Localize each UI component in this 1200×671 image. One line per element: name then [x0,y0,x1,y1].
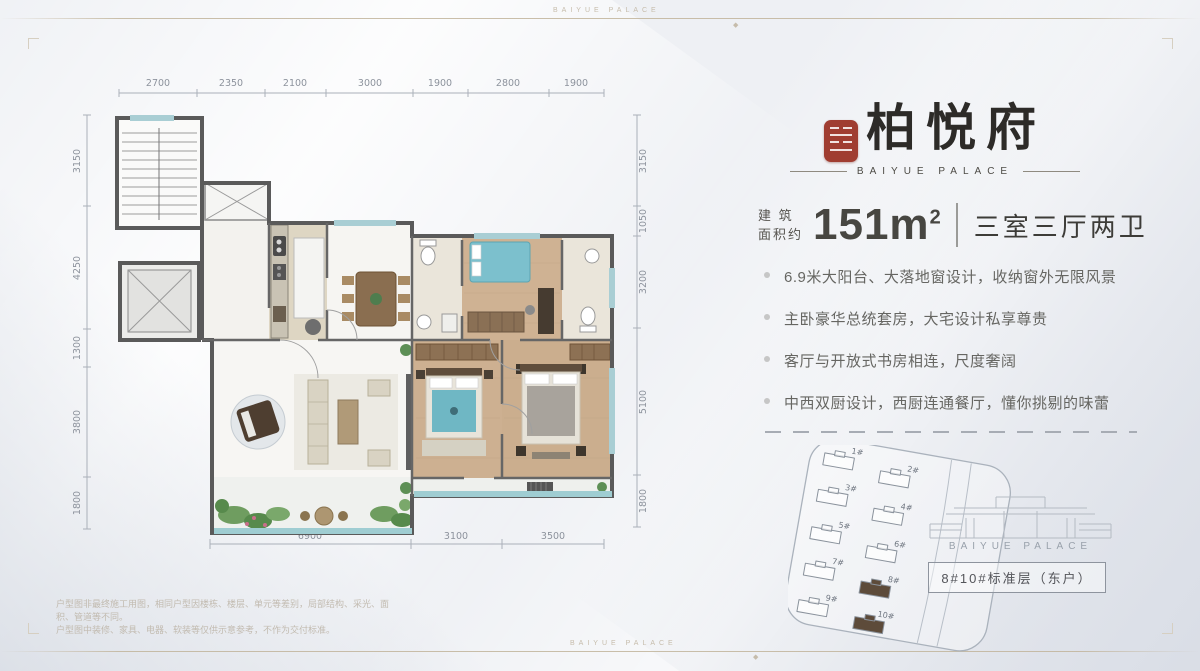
feature-item: 客厅与开放式书房相连，尺度奢阔 [762,350,1172,371]
feature-item: 中西双厨设计，西厨连通餐厅，懂你挑剔的味蕾 [762,392,1172,413]
dimension-label: 3500 [541,531,565,542]
dimension-label: 4250 [72,256,83,280]
dimension-right: 3150 1050 3200 5100 1800 [633,115,649,527]
poster: BAIYUE PALACE ◆ BAIYUE PALACE ◆ 2700 235… [0,0,1200,671]
bullet-dot [764,398,770,404]
floor-plan: 2700 2350 2100 3000 1900 2800 1900 3150 … [72,78,652,563]
elevation-caption: BAIYUE PALACE [918,541,1123,552]
dimension-label: 2700 [146,78,170,89]
feature-text: 中西双厨设计，西厨连通餐厅，懂你挑剔的味蕾 [784,392,1110,413]
dimension-label: 1800 [638,489,649,513]
bullet-dot [764,314,770,320]
corner-mark [28,38,39,49]
dimension-label: 3200 [638,270,649,294]
watermark-bottom: BAIYUE PALACE [570,640,677,647]
dimension-label: 3800 [72,410,83,434]
dimension-label: 2100 [283,78,307,89]
dashed-divider [765,431,1137,433]
area-label-line2: 面积约 [758,225,803,244]
disclaimer: 户型图非最终施工用图，相同户型因楼栋、楼层、单元等差别，局部结构、采光、面积、管… [56,598,396,637]
balcony [212,477,412,531]
diamond-ornament-bottom: ◆ [753,653,758,661]
subtitle-rule-left [790,171,847,172]
area-superscript: 2 [930,206,942,228]
dimension-label: 1800 [72,491,83,515]
area-label-line1: 建 筑 [758,206,803,225]
brand-seal-icon [824,120,858,162]
dimension-label: 1300 [72,336,83,360]
dimension-label: 3000 [358,78,382,89]
subtitle-rule-right [1023,171,1080,172]
duct-shaft [205,183,269,220]
watermark-top: BAIYUE PALACE [553,7,660,14]
dimension-label: 1900 [428,78,452,89]
dimension-label: 2800 [496,78,520,89]
corner-mark [1162,38,1173,49]
area-number: 151m [813,200,930,249]
feature-item: 主卧豪华总统套房，大宅设计私享尊贵 [762,308,1172,329]
feature-text: 6.9米大阳台、大落地窗设计，收纳窗外无限风景 [784,266,1116,287]
brand-block: 柏悦府 BAIYUE PALACE [790,98,1080,177]
feature-item: 6.9米大阳台、大落地窗设计，收纳窗外无限风景 [762,266,1172,287]
dimension-label: 3150 [638,149,649,173]
dimension-label: 2350 [219,78,243,89]
brand-name-en: BAIYUE PALACE [857,166,1013,177]
bottom-rule [0,651,1200,652]
unit-label: 8#10#标准层（东户） [928,562,1106,593]
top-rule [0,18,1200,19]
corner-mark [28,623,39,634]
dining-set [342,272,410,326]
dimension-label: 5100 [638,390,649,414]
brand-subtitle: BAIYUE PALACE [790,166,1080,177]
feature-text: 客厅与开放式书房相连，尺度奢阔 [784,350,1017,371]
feature-list: 6.9米大阳台、大落地窗设计，收纳窗外无限风景 主卧豪华总统套房，大宅设计私享尊… [762,266,1172,434]
elevation-drawing [918,488,1123,540]
corner-mark [1162,623,1173,634]
area-label: 建 筑 面积约 [758,206,803,244]
brand-name: 柏悦府 [866,98,1046,158]
dimension-label: 3150 [72,149,83,173]
elevator-cab [128,270,191,332]
bullet-dot [764,272,770,278]
dimension-left: 3150 4250 1300 3800 1800 [72,115,91,529]
area-block: 建 筑 面积约 151m2 三室三厅两卫 [758,200,1168,250]
layout-label: 三室三厅两卫 [974,207,1148,244]
dimension-top: 2700 2350 2100 3000 1900 2800 1900 [119,78,604,97]
dimension-label: 1900 [564,78,588,89]
diamond-ornament-top: ◆ [733,21,738,29]
area-value: 151m2 [813,200,942,250]
bullet-dot [764,356,770,362]
disclaimer-line1: 户型图非最终施工用图，相同户型因楼栋、楼层、单元等差别，局部结构、采光、面积、管… [56,598,396,624]
disclaimer-line2: 户型图中装修、家具、电器、软装等仅供示意参考，不作为交付标准。 [56,624,396,637]
area-divider [956,203,958,247]
feature-text: 主卧豪华总统套房，大宅设计私享尊贵 [784,308,1048,329]
dimension-label: 3100 [444,531,468,542]
dimension-label: 1050 [638,209,649,233]
